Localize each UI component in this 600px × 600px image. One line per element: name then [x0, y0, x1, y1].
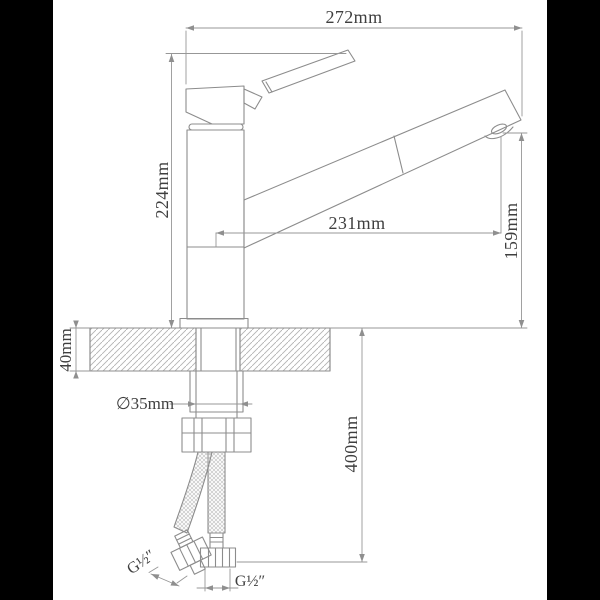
paper-area: [53, 0, 547, 600]
counter-hatch-left: [90, 328, 196, 371]
dim-label-hole-diameter: ∅35mm: [116, 394, 174, 413]
hose-braid: [208, 452, 225, 533]
dim-label-overall-reach: 272mm: [325, 7, 382, 27]
dim-label-hose-length: 400mm: [341, 415, 361, 472]
counter-hatch-right: [240, 328, 330, 371]
dim-label-spout-reach: 231mm: [328, 213, 385, 233]
dim-label-counter-thickness: 40mm: [56, 328, 75, 371]
dim-label-outlet-height: 159mm: [501, 202, 521, 259]
dim-label-body-height: 224mm: [152, 161, 172, 218]
faucet-dimension-drawing: 272mm 224mm 231mm 159mm: [0, 0, 600, 600]
dim-label-thread-right: G½″: [235, 573, 265, 590]
drawing-page: 272mm 224mm 231mm 159mm: [0, 0, 600, 600]
